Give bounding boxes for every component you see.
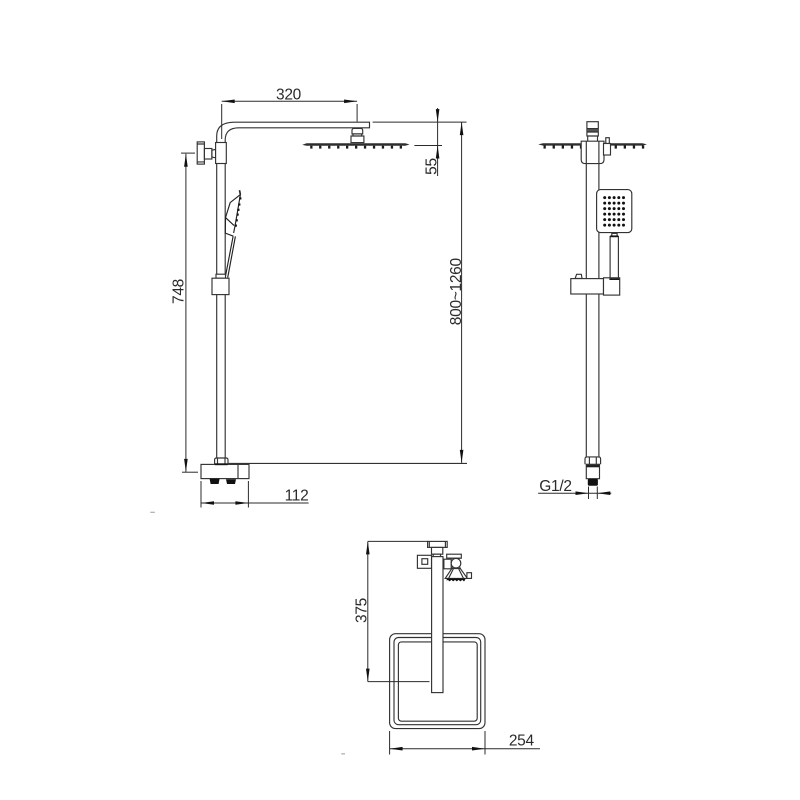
svg-text:254: 254 [509,733,535,750]
svg-text:320: 320 [276,87,302,104]
svg-text:55: 55 [424,158,441,175]
svg-text:G1/2: G1/2 [539,478,571,495]
svg-text:375: 375 [354,598,371,623]
svg-text:112: 112 [285,488,309,505]
svg-text:748: 748 [171,279,188,304]
svg-text:800~1260: 800~1260 [448,258,465,326]
